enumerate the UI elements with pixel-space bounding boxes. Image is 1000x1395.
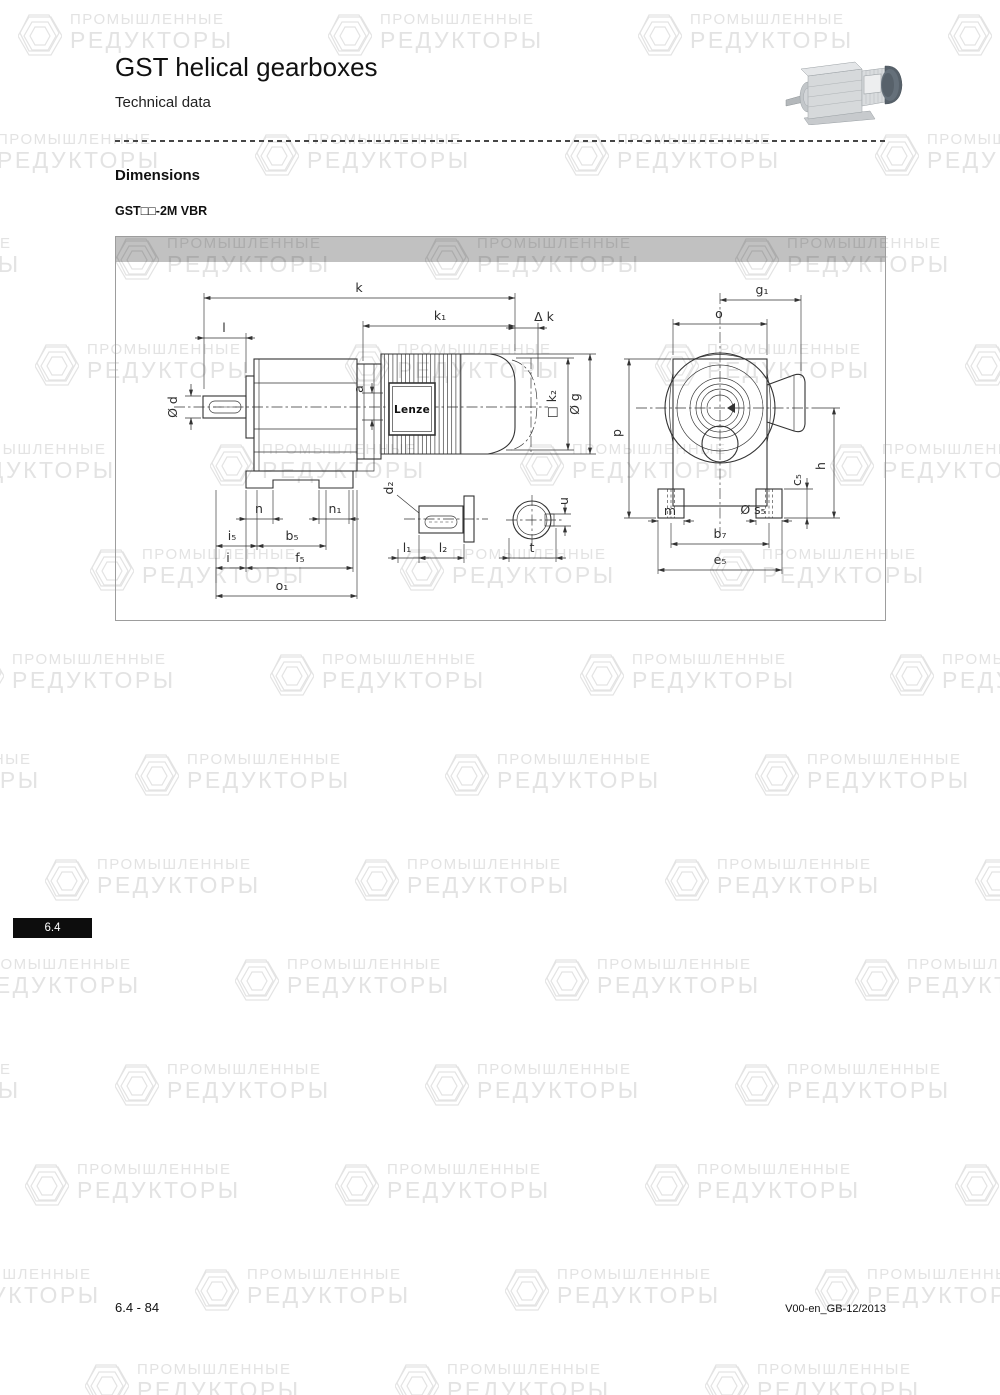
dim-label-b7: b₇ <box>714 526 727 541</box>
model-label: GST□□-2M VBR <box>115 204 207 218</box>
footer-page-number: 6.4 - 84 <box>115 1300 159 1315</box>
dim-label-g1: g₁ <box>756 282 769 297</box>
dim-label-o: o <box>715 306 723 321</box>
dashed-separator <box>115 140 886 142</box>
dim-label-e5: e₅ <box>714 552 727 567</box>
dim-label-p: p <box>609 429 624 437</box>
dim-label-n: n <box>255 501 263 516</box>
lenze-logo: Lenze <box>394 404 430 416</box>
dim-label-a: a <box>351 385 366 393</box>
dim-label-d2: d₂ <box>381 482 396 495</box>
dim-label-c5: c₅ <box>789 474 804 486</box>
section-tab: 6.4 <box>13 918 92 938</box>
dim-label-k: k <box>355 280 363 295</box>
dim-label-b5: b₅ <box>286 528 299 543</box>
dim-label-dk: Δ k <box>534 309 555 324</box>
dim-label-t: t <box>530 540 535 555</box>
dimension-drawing: Lenze Ø d k k₁ Δ k l <box>116 237 885 620</box>
dim-label-l: l <box>222 320 225 335</box>
dim-label-l1: l₁ <box>403 540 411 555</box>
dim-label-n1: n₁ <box>329 501 342 516</box>
page-subtitle: Technical data <box>115 94 211 111</box>
dim-label-l2: l₂ <box>439 540 447 555</box>
dim-label-g: Ø g <box>567 393 582 415</box>
product-photo <box>782 40 907 125</box>
page-title: GST helical gearboxes <box>115 52 378 83</box>
dim-label-h: h <box>813 462 828 470</box>
section-heading: Dimensions <box>115 167 200 184</box>
dim-label-m: m <box>664 503 676 518</box>
dim-label-u: u <box>556 497 571 505</box>
dim-label-k1: k₁ <box>434 308 446 323</box>
dim-label-f5: f₅ <box>295 550 304 565</box>
dim-label-i: i <box>226 550 229 565</box>
dim-label-k2: □ k₂ <box>544 390 559 418</box>
footer-doc-version: V00-en_GB-12/2013 <box>785 1303 886 1315</box>
dim-label-o1: o₁ <box>276 578 289 593</box>
dim-label-i5: i₅ <box>228 528 236 543</box>
dim-label-s5: Ø s₅ <box>740 502 765 517</box>
datasheet-page: ПРОМЫШЛЕННЫЕРЕДУКТОРЫПРОМЫШЛЕННЫЕРЕДУКТО… <box>0 0 1000 1395</box>
dimension-drawing-frame: Lenze Ø d k k₁ Δ k l <box>115 236 886 621</box>
dim-label-d: Ø d <box>165 396 180 418</box>
